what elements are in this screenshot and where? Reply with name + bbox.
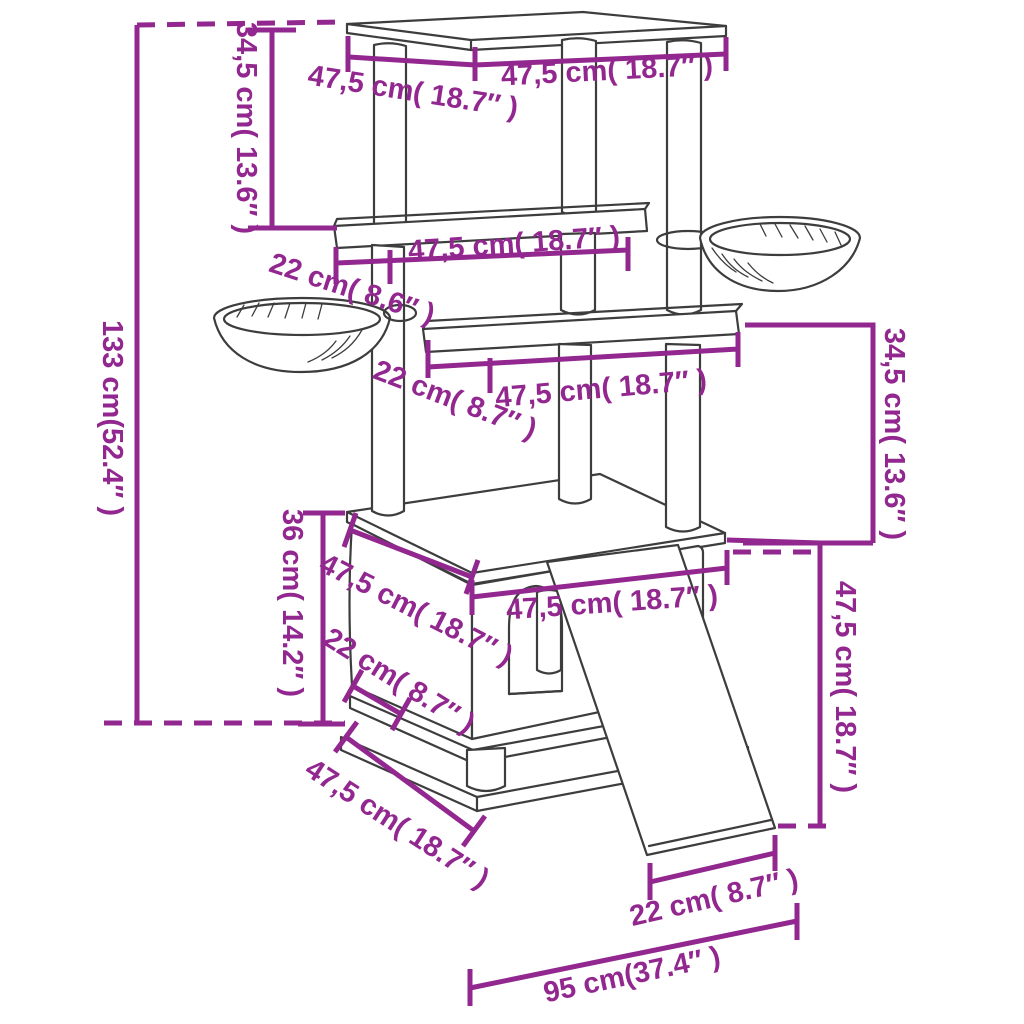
- dimension-label-upper-section-height: 34,5 cm( 13.6″ ): [230, 22, 262, 234]
- dimension-label-overall-height: 133 cm(52.4″ ): [96, 320, 128, 516]
- cat-tree-dimension-diagram: 47,5 cm( 18.7″ ) 47,5 cm( 18.7″ ) 34,5 c…: [0, 0, 1024, 1024]
- dimension-label-mid-section-height: 34,5 cm( 13.6″ ): [878, 328, 910, 540]
- dimension-label-base-total-width: 95 cm(37.4″ ): [541, 941, 724, 1010]
- dimension-label-ramp-height: 47,5 cm( 18.7″ ): [829, 581, 861, 793]
- dimension-label-ramp-foot-length: 22 cm( 8.7″ ): [627, 863, 802, 933]
- cat-tree-line-art: [214, 12, 860, 855]
- base-post: [467, 748, 505, 791]
- dimension-diagram-page: 47,5 cm( 18.7″ ) 47,5 cm( 18.7″ ) 34,5 c…: [0, 0, 1024, 1024]
- scratching-post-lower-middle: [559, 344, 591, 504]
- dimension-mid-section-height-lines: [743, 325, 873, 543]
- dimension-label-condo-height: 36 cm( 14.2″ ): [276, 509, 308, 697]
- dimension-label-top-platform-depth: 47,5 cm( 18.7″ ): [306, 60, 521, 125]
